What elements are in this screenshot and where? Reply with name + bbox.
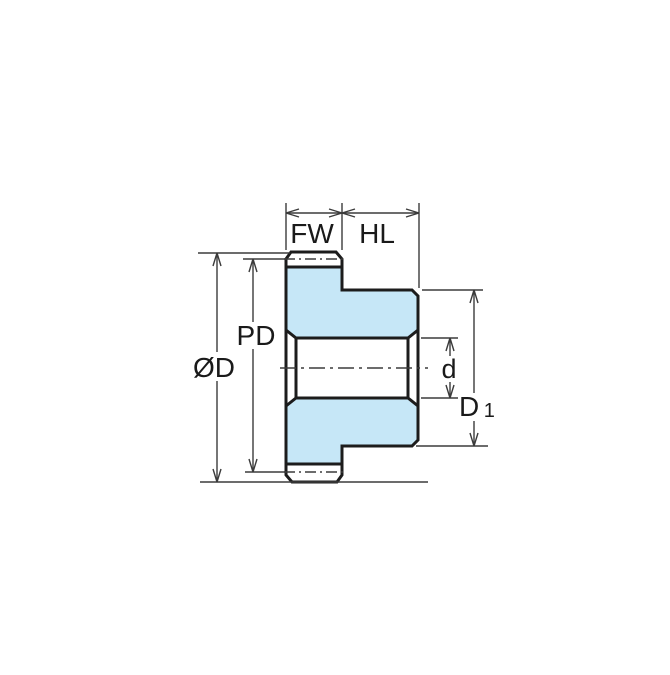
label-outer-diameter: ØD [193,352,235,383]
dim-pitch-diameter [243,259,286,472]
label-hub-length: HL [359,218,395,249]
label-bore-diameter: d [441,354,456,384]
label-face-width: FW [290,218,334,249]
label-hub-diameter-main: D [459,391,479,422]
gear-body-lower [286,398,418,464]
label-hub-diameter: D 1 [459,391,495,422]
gear-tooth-bottom [286,464,342,482]
gear-body-upper [286,267,418,338]
gear-dimension-drawing: FW HL ØD PD d D 1 [0,0,670,670]
label-hub-diameter-subscript: 1 [484,400,495,422]
gear-cross-section [286,252,418,482]
label-pitch-diameter: PD [237,320,276,351]
diagram-canvas: FW HL ØD PD d D 1 [0,0,670,670]
